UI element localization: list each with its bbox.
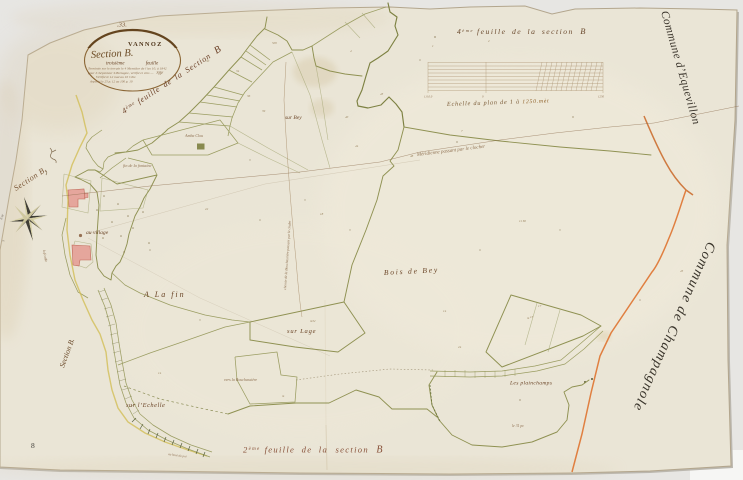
svg-text:14: 14 [443, 309, 447, 313]
svg-text:fin de la fontaine: fin de la fontaine [123, 163, 152, 168]
svg-text:15: 15 [530, 315, 534, 319]
svg-text:.33.: .33. [117, 22, 127, 29]
svg-text:Section B.: Section B. [91, 48, 134, 61]
svg-text:36: 36 [247, 94, 251, 98]
svg-text:sur l’Echelle: sur l’Echelle [126, 402, 165, 409]
svg-text:1.0.0.0: 1.0.0.0 [424, 95, 433, 99]
svg-text:4èmefeuille de la section B: 4èmefeuille de la section B [457, 26, 587, 36]
svg-text:Vérifié le 12 mai au 10 Côte: Vérifié le 12 mai au 10 Côte [96, 75, 136, 79]
svg-text:17: 17 [538, 304, 542, 308]
svg-text:le 31 pc: le 31 pc [512, 424, 524, 428]
svg-text:Amba Clou: Amba Clou [184, 133, 203, 138]
svg-text:45: 45 [680, 269, 684, 273]
svg-text:40: 40 [345, 115, 349, 119]
svg-text:500: 500 [272, 41, 277, 45]
svg-text:VANNOZ: VANNOZ [128, 41, 163, 48]
svg-text:14: 14 [158, 371, 162, 375]
svg-text:11 60: 11 60 [519, 219, 526, 223]
svg-text:39: 39 [262, 109, 266, 113]
svg-text:sur Bey: sur Bey [285, 115, 302, 121]
svg-text:sur Lage: sur Lage [287, 328, 316, 335]
svg-text:22: 22 [205, 207, 209, 211]
svg-text:8: 8 [31, 441, 35, 450]
svg-text:34: 34 [236, 69, 240, 73]
svg-text:24: 24 [458, 345, 462, 349]
svg-text:43: 43 [380, 92, 384, 96]
svg-text:Arpenté le 25 p. 12 au 100 p.: Arpenté le 25 p. 12 au 100 p. 10 [89, 79, 133, 83]
svg-text:Les plainchamps: Les plainchamps [509, 381, 552, 387]
svg-text:44: 44 [355, 144, 359, 148]
svg-text:A La fin: A La fin [143, 290, 186, 299]
svg-text:m32: m32 [310, 319, 316, 323]
svg-text:2èmefeuille de la section B: 2èmefeuille de la section B [243, 445, 384, 456]
svg-text:18: 18 [320, 212, 324, 216]
svg-text:vers la Bouchassière: vers la Bouchassière [224, 377, 257, 382]
svg-text:1250: 1250 [598, 95, 605, 99]
